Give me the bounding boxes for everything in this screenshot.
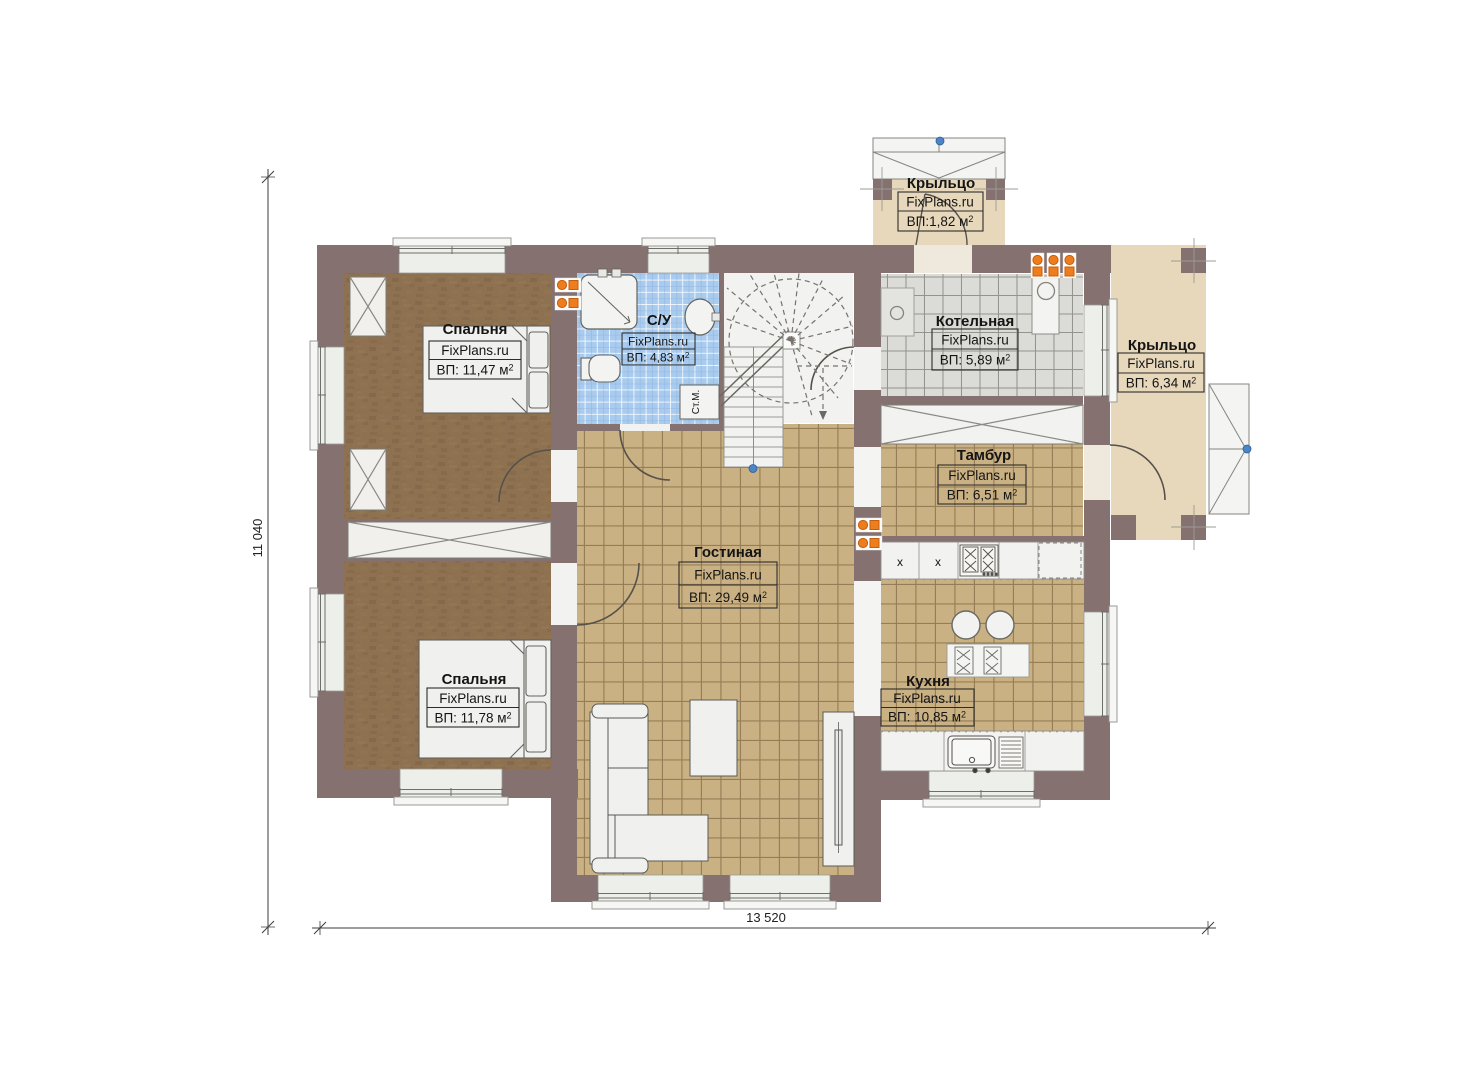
svg-text:Крыльцо: Крыльцо bbox=[1128, 337, 1196, 354]
svg-text:ВП: 6,51 м2: ВП: 6,51 м2 bbox=[947, 488, 1018, 503]
svg-text:ВП: 11,47 м2: ВП: 11,47 м2 bbox=[436, 363, 513, 378]
svg-text:FixPlans.ru: FixPlans.ru bbox=[694, 568, 762, 583]
svg-text:Тамбур: Тамбур bbox=[957, 447, 1011, 464]
svg-text:FixPlans.ru: FixPlans.ru bbox=[439, 691, 507, 706]
svg-text:ВП:1,82 м2: ВП:1,82 м2 bbox=[907, 214, 974, 229]
svg-text:11 040: 11 040 bbox=[250, 519, 265, 558]
svg-text:FixPlans.ru: FixPlans.ru bbox=[893, 691, 961, 706]
svg-text:ВП: 11,78 м2: ВП: 11,78 м2 bbox=[434, 711, 511, 726]
svg-text:13 520: 13 520 bbox=[746, 910, 786, 925]
svg-text:FixPlans.ru: FixPlans.ru bbox=[1127, 356, 1195, 371]
svg-text:ВП: 4,83 м2: ВП: 4,83 м2 bbox=[627, 351, 690, 365]
svg-text:FixPlans.ru: FixPlans.ru bbox=[441, 343, 509, 358]
svg-text:Спальня: Спальня bbox=[443, 321, 508, 338]
svg-text:FixPlans.ru: FixPlans.ru bbox=[941, 333, 1009, 348]
svg-text:Крыльцо: Крыльцо bbox=[907, 175, 975, 192]
svg-text:FixPlans.ru: FixPlans.ru bbox=[948, 468, 1016, 483]
svg-text:С/У: С/У bbox=[647, 312, 672, 329]
svg-text:Кухня: Кухня bbox=[906, 673, 950, 690]
svg-text:FixPlans.ru: FixPlans.ru bbox=[628, 335, 688, 349]
svg-text:Спальня: Спальня bbox=[442, 671, 507, 688]
svg-text:x: x bbox=[897, 555, 903, 569]
svg-text:x: x bbox=[935, 555, 941, 569]
svg-text:FixPlans.ru: FixPlans.ru bbox=[906, 195, 974, 210]
svg-text:Гостиная: Гостиная bbox=[694, 544, 762, 561]
svg-text:Ст.М.: Ст.М. bbox=[691, 390, 702, 415]
svg-text:ВП: 6,34 м2: ВП: 6,34 м2 bbox=[1126, 376, 1197, 391]
svg-text:Котельная: Котельная bbox=[936, 313, 1015, 330]
svg-text:ВП: 29,49 м2: ВП: 29,49 м2 bbox=[689, 590, 767, 605]
svg-text:ВП: 5,89 м2: ВП: 5,89 м2 bbox=[940, 353, 1011, 368]
svg-text:ВП: 10,85 м2: ВП: 10,85 м2 bbox=[888, 710, 966, 725]
